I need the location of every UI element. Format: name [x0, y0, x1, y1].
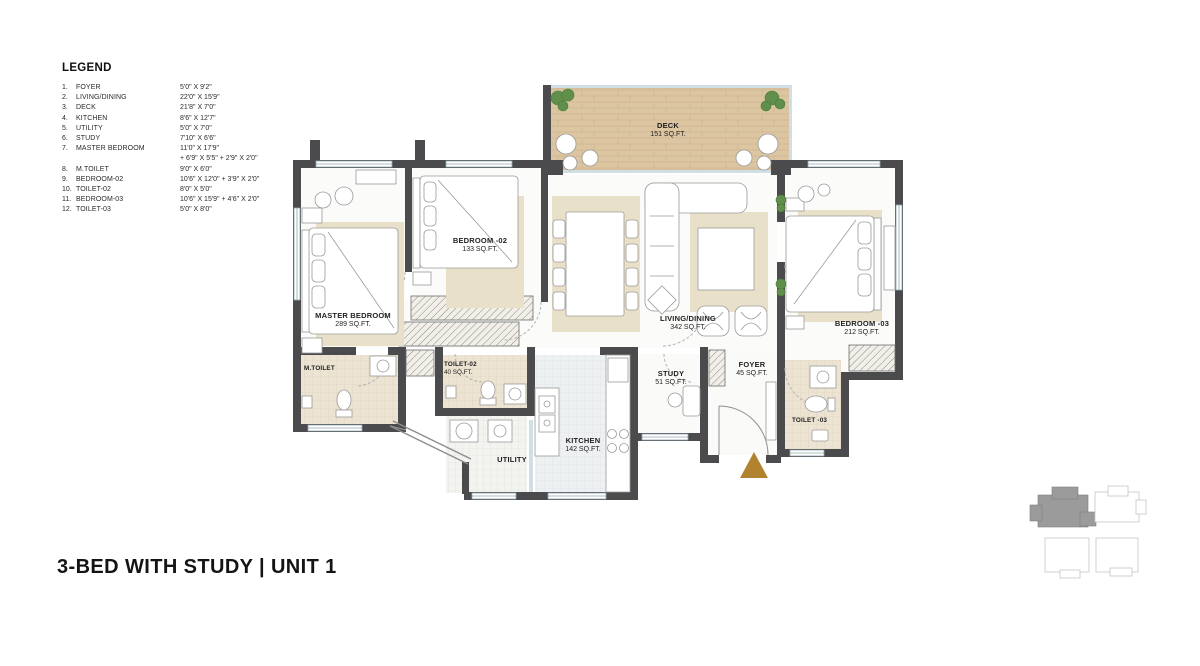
key-plan: [1030, 486, 1146, 578]
foyer-cabinet: [766, 382, 776, 440]
unit-title: 3-BED WITH STUDY | UNIT 1: [57, 556, 337, 579]
key-plan-unit1-highlight: [1030, 487, 1096, 527]
floorplan-page: LEGEND 1.FOYER5'0" X 9'2"2.LIVING/DINING…: [0, 0, 1200, 666]
entry-arrow: [740, 452, 768, 478]
